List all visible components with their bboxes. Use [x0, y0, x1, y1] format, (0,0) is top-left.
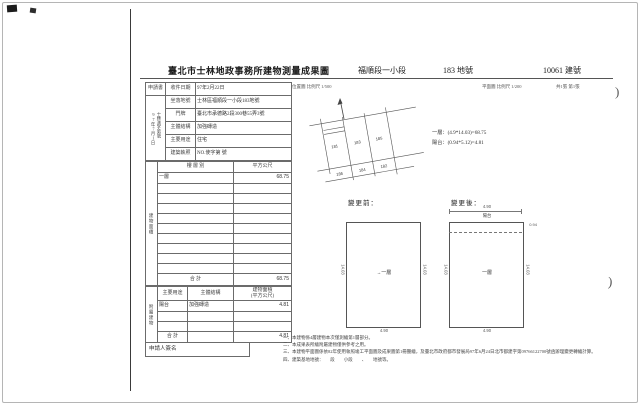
floor-row-area: 68.75 [234, 173, 292, 184]
balcony-depth-dimension: 0.94 [529, 222, 537, 227]
before-change-diagram: 變更前： →一層 14.03 14.03 4.90 [344, 197, 424, 337]
after-left-dimension: 14.03 [444, 264, 449, 274]
before-floor-label: →一層 [344, 269, 424, 276]
annex-use-header: 主要用途 [158, 287, 188, 301]
empty-row [146, 322, 292, 332]
use-label: 主要用途 [166, 135, 196, 148]
empty-row [146, 194, 292, 204]
document-title: 臺北市士林地政事務所建物測量成果圖 [168, 64, 330, 77]
floor-total-label: 合 計 [158, 274, 234, 286]
use-value: 住宅 [196, 135, 292, 148]
after-top-dimension-line [449, 211, 522, 212]
before-right-dimension: 14.03 [422, 264, 427, 274]
structure-label: 主體結構 [166, 122, 196, 135]
annex-total-spacer [188, 332, 234, 343]
sheet-count: 共1張 第1張 [556, 84, 580, 90]
balcony-label: 陽台 [447, 213, 527, 219]
received-date-label: 收件日期 [166, 83, 196, 96]
lot-value: 士林區福順段一小段183地號 [196, 96, 292, 109]
parcel-186: 186 [336, 171, 344, 177]
application-label: 申請書 [146, 83, 166, 96]
empty-row [146, 244, 292, 254]
parcel-185: 185 [375, 135, 383, 141]
annex-row-use: 陽台 [158, 301, 188, 312]
floor-column-header: 樓 層 別 [158, 162, 234, 173]
annex-building-table: 附屬建物 主要用途 主體結構 建物面積 (平方公尺) 陽台 加強磚造 4.81 … [145, 286, 292, 343]
footnote-3: 三、本建物平面圖係依82年使用執照竣工平面圖及成果圖第1冊謄繪，及臺北市政府都市… [283, 348, 614, 355]
annex-structure-header: 主體結構 [188, 287, 234, 301]
permit-label: 建築執照 [166, 148, 196, 161]
area-formulas: 一層：(4.9*14.03)=68.75 陽台：(0.94*5.12)=4.81 [432, 128, 486, 148]
formula-balcony: 陽台：(0.94*5.12)=4.81 [432, 138, 486, 148]
footnote-4: 四、建築基地地號： 段 小段 、 地號等。 [283, 356, 614, 363]
parcel-182: 182 [380, 163, 388, 169]
empty-row [146, 254, 292, 264]
scan-artifact-mark [7, 5, 17, 13]
parcel-183: 183 [354, 139, 362, 145]
scanned-survey-document: ) ) 臺北市士林地政事務所建物測量成果圖 福順段一小段 183 地號 1006… [0, 0, 640, 405]
after-right-dimension: 14.03 [525, 264, 530, 274]
footnote-2: 二、本成果表所繪附屬建物僅供參考之用。 [283, 341, 614, 348]
footnote-1: 一、本建物係4層建物本次僅測繪第1層部分。 [283, 334, 614, 341]
after-floor-label: 一層 [447, 269, 527, 276]
floor-total-value: 68.75 [234, 274, 292, 286]
scan-artifact-paren: ) [615, 84, 619, 100]
annex-area-header-line1: 建物面積 [252, 288, 272, 293]
floor-area-table: 建物面積 樓 層 別 平方公尺 一層 68.75 合 計 68.75 [145, 161, 292, 286]
floor-row-label: 一層 [158, 173, 234, 184]
after-top-dimension: 4.90 [447, 204, 527, 209]
empty-row [146, 312, 292, 322]
empty-row [146, 234, 292, 244]
parcel-number: 183 地號 [443, 65, 473, 76]
location-map-scale: 位置圖 比例尺 1/500 [292, 84, 332, 90]
location-sketch: 181 183 185 186 184 182 [298, 92, 433, 192]
annex-area-header-line2: (平方公尺) [251, 294, 274, 299]
before-floor-text: 一層 [381, 271, 391, 276]
info-form: 申請書 收件日期 97年2月22日 士林測字第號 97年7月1日 坐落地號 士林… [145, 82, 291, 357]
lot-label: 坐落地號 [166, 96, 196, 109]
after-floor-text: 一層 [482, 271, 492, 276]
received-date-value: 97年2月22日 [196, 83, 292, 96]
structure-value: 加強磚造 [196, 122, 292, 135]
after-bottom-dimension: 4.90 [447, 328, 527, 333]
empty-row [146, 214, 292, 224]
north-arrow-icon [338, 98, 345, 119]
annex-row-structure: 加強磚造 [188, 301, 234, 312]
annex-total-label: 合 計 [158, 332, 188, 343]
before-bottom-dimension: 4.90 [344, 328, 424, 333]
annex-area-header: 建物面積 (平方公尺) [234, 287, 292, 301]
empty-row [146, 184, 292, 194]
after-change-diagram: 變更後： 4.90 陽台 0.94 一層 14.03 14.03 4.90 [447, 197, 527, 337]
footnotes: 一、本建物係4層建物本次僅測繪第1層部分。 二、本成果表所繪附屬建物僅供參考之用… [283, 334, 614, 363]
floor-area-side-label: 建物面積 [146, 162, 158, 286]
applicant-signature-cell: 申請人簽名 [145, 343, 250, 357]
parcel-lines: 181 183 185 186 184 182 [309, 102, 427, 188]
empty-row [146, 204, 292, 214]
parcel-184: 184 [358, 167, 366, 173]
formula-first-floor: 一層：(4.9*14.03)=68.75 [432, 128, 486, 138]
annex-side-label: 附屬建物 [146, 287, 158, 343]
balcony-dashed-line [449, 232, 522, 233]
before-change-label: 變更前： [348, 197, 378, 207]
header-rule [140, 78, 613, 79]
empty-row [146, 224, 292, 234]
address-label: 門牌 [166, 109, 196, 122]
scan-artifact-mark [30, 8, 37, 14]
file-number-strip: 士林測字第號 97年7月1日 [146, 96, 166, 161]
permit-value: NO.使字第 號 [196, 148, 292, 161]
area-column-header: 平方公尺 [234, 162, 292, 173]
land-section: 福順段一小段 [358, 65, 406, 76]
empty-row [146, 264, 292, 274]
address-value: 臺北市承德路2段300巷55弄3號 [196, 109, 292, 122]
parcel-181: 181 [331, 143, 339, 149]
scan-edge-line [130, 9, 131, 391]
file-number-vertical: 士林測字第號 [156, 112, 161, 145]
annex-row-area: 4.81 [234, 301, 292, 312]
file-date-vertical: 97年7月1日 [150, 112, 155, 145]
info-table: 申請書 收件日期 97年2月22日 士林測字第號 97年7月1日 坐落地號 士林… [145, 82, 292, 161]
building-number: 10061 建號 [543, 65, 581, 76]
plan-scale: 平面圖 比例尺 1/200 [482, 84, 522, 90]
before-left-dimension: 14.03 [341, 264, 346, 274]
